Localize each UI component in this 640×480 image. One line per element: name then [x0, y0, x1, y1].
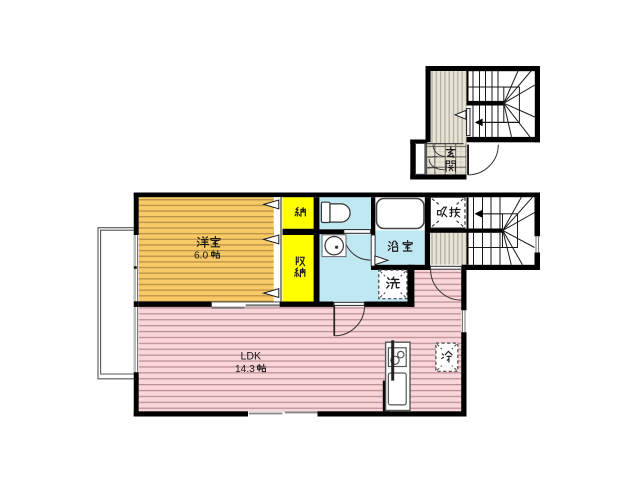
svg-text:6.0: 6.0: [194, 250, 208, 261]
svg-text:14.3: 14.3: [235, 364, 255, 375]
svg-text:LDK: LDK: [241, 351, 262, 363]
